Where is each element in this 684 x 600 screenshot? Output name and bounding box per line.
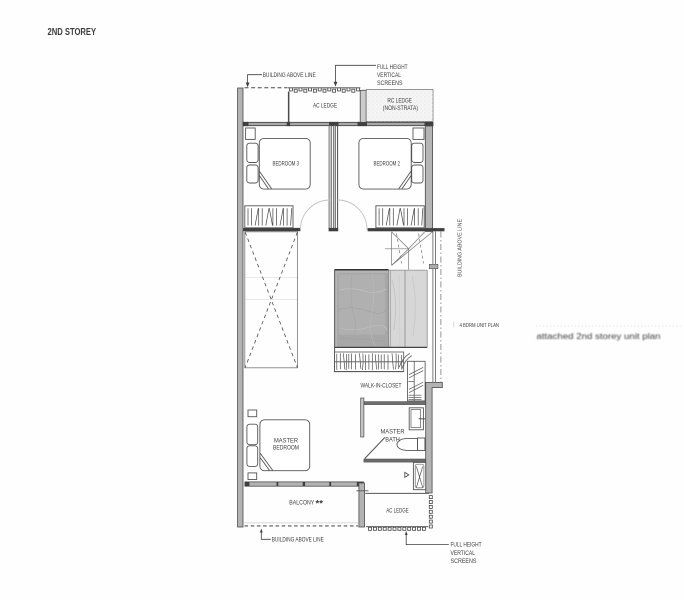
svg-text:BATH: BATH (385, 436, 400, 443)
svg-text:FULL HEIGHT: FULL HEIGHT (377, 64, 408, 71)
svg-text:SCREENS: SCREENS (451, 558, 477, 565)
svg-text:BEDROOM 3: BEDROOM 3 (273, 160, 300, 167)
svg-text:2ND STOREY: 2ND STOREY (48, 27, 97, 38)
svg-text:BUILDING ABOVE LINE: BUILDING ABOVE LINE (458, 219, 464, 277)
svg-text:MASTER: MASTER (381, 429, 405, 436)
svg-text:SCREENS: SCREENS (377, 80, 403, 87)
svg-text:FULL HEIGHT: FULL HEIGHT (451, 542, 482, 549)
svg-text:BUILDING ABOVE LINE: BUILDING ABOVE LINE (272, 537, 324, 544)
svg-text:(NON-STRATA): (NON-STRATA) (383, 105, 418, 112)
svg-text:4 BDRM UNIT PLAN: 4 BDRM UNIT PLAN (460, 323, 500, 329)
svg-text:AC LEDGE: AC LEDGE (313, 103, 337, 110)
svg-text:VERTICAL: VERTICAL (377, 72, 401, 79)
svg-text:MASTER: MASTER (274, 438, 298, 445)
svg-text:BEDROOM: BEDROOM (273, 445, 299, 452)
svg-text:WALK-IN-CLOSET: WALK-IN-CLOSET (361, 383, 402, 390)
svg-text:VERTICAL: VERTICAL (451, 550, 476, 557)
svg-text:BALCONY: BALCONY (289, 500, 314, 507)
svg-text:AC LEDGE: AC LEDGE (386, 508, 409, 515)
svg-text:BEDROOM 2: BEDROOM 2 (374, 160, 401, 167)
svg-text:attached 2nd storey unit plan: attached 2nd storey unit plan (537, 332, 661, 341)
svg-text:BUILDING ABOVE LINE: BUILDING ABOVE LINE (263, 72, 316, 79)
svg-text:RC LEDGE: RC LEDGE (387, 98, 412, 105)
svg-text:**: ** (316, 499, 324, 510)
